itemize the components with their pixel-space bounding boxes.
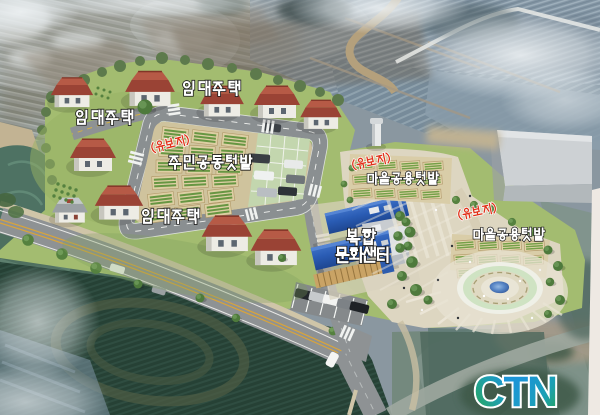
svg-text:T: T bbox=[504, 368, 530, 415]
svg-text:C: C bbox=[474, 368, 504, 415]
svg-text:N: N bbox=[527, 368, 556, 415]
